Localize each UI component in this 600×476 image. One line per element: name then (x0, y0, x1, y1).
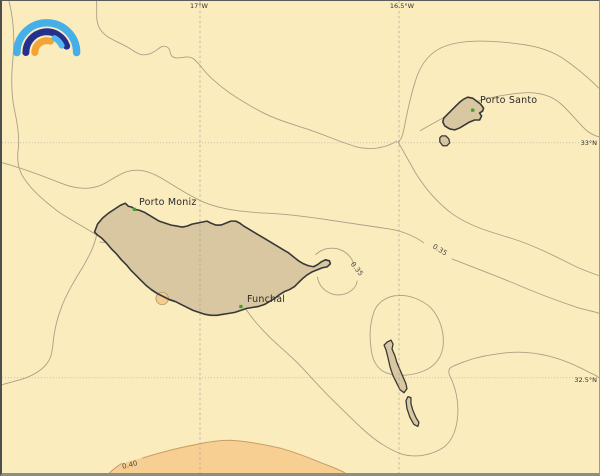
place-label-porto-santo: Porto Santo (480, 95, 537, 106)
parallel-label-32-5n: 32.5°N (574, 376, 597, 384)
porto-moniz-marker (133, 208, 136, 211)
place-label-funchal: Funchal (247, 294, 285, 305)
map-canvas[interactable]: 17°W 16.5°W 33°N 32.5°N Porto Moniz Func… (0, 0, 600, 476)
porto-santo-marker (471, 109, 474, 112)
meridian-label-17w: 17°W (187, 2, 211, 10)
sea-background (2, 1, 599, 473)
place-label-porto-moniz: Porto Moniz (139, 197, 197, 208)
parallel-label-33n: 33°N (581, 139, 597, 147)
basemap-svg (2, 1, 599, 473)
meridian-label-16-5w: 16.5°W (388, 2, 416, 10)
funchal-marker (239, 305, 242, 308)
